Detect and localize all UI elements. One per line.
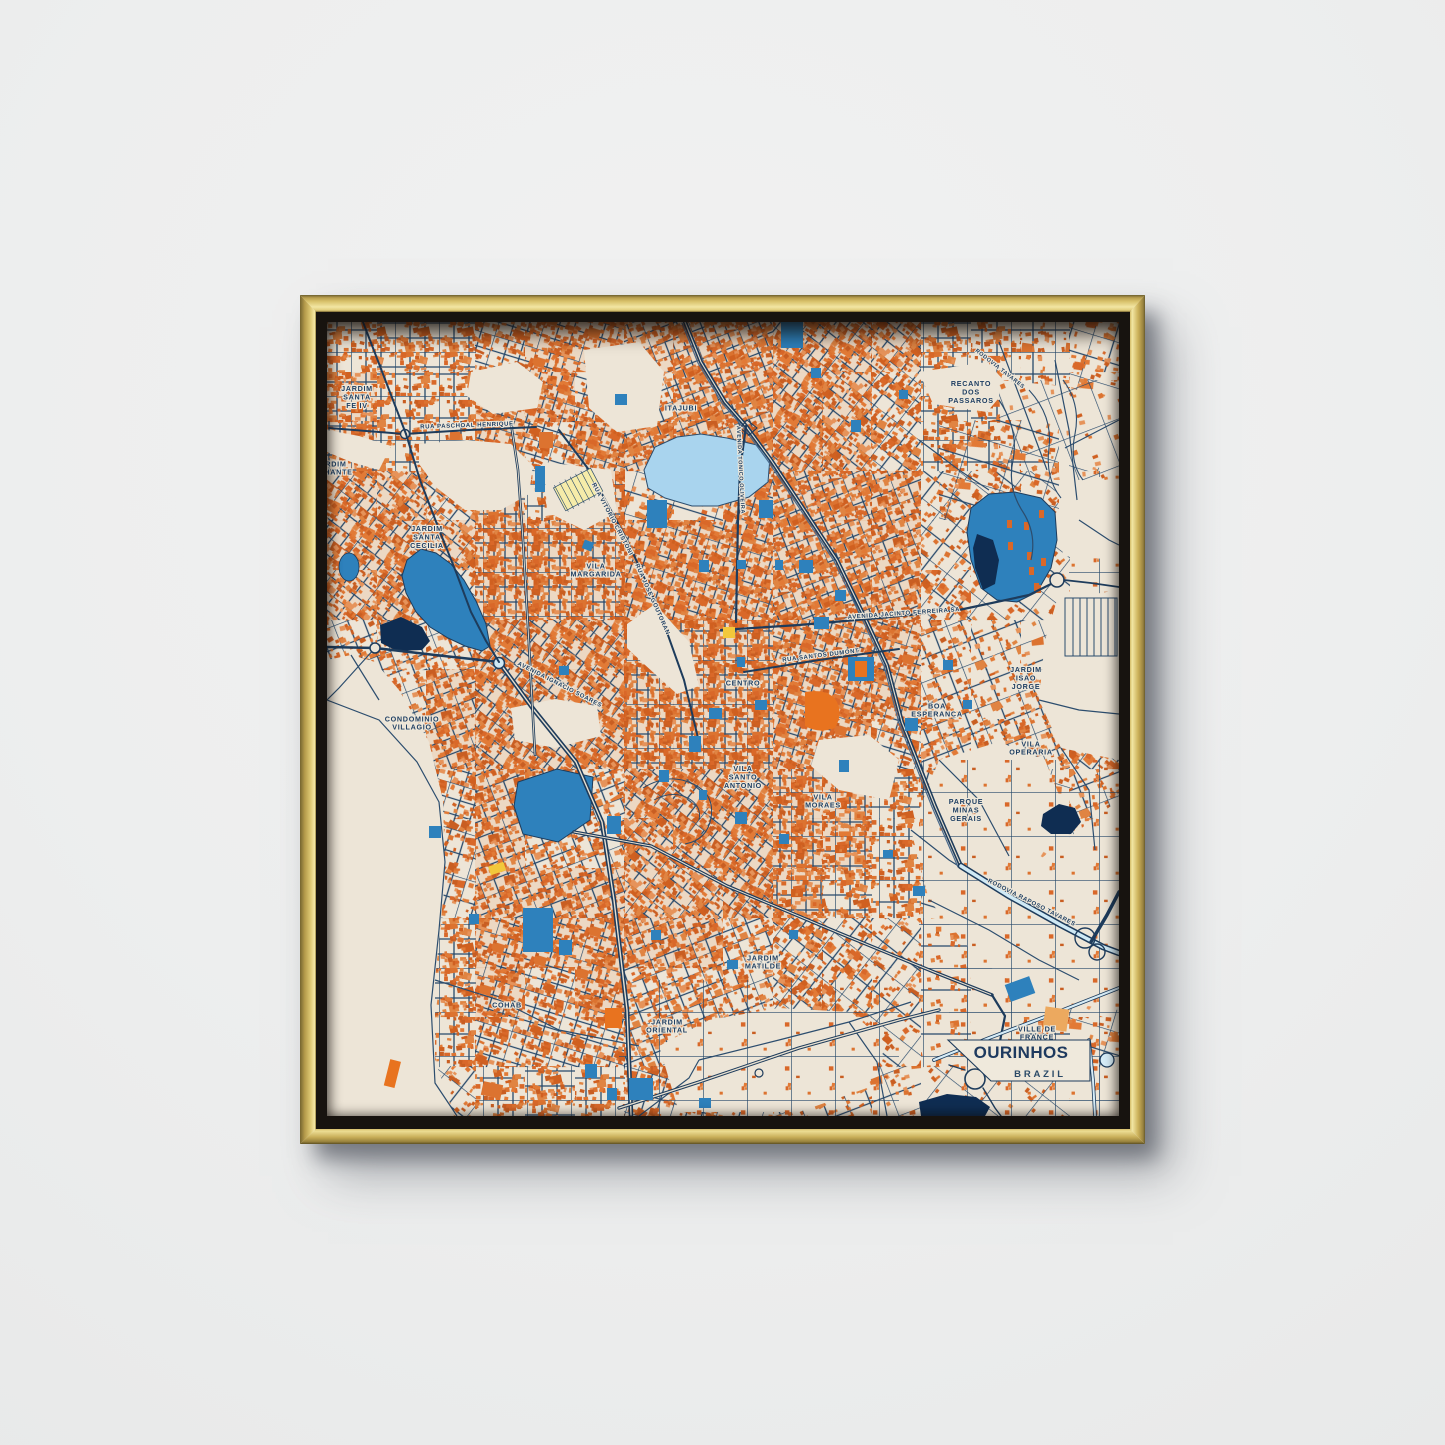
svg-text:BRAZIL: BRAZIL — [1014, 1069, 1066, 1080]
svg-text:ITAJUBI: ITAJUBI — [665, 404, 697, 413]
svg-text:JARDIMSANTACECILIA: JARDIMSANTACECILIA — [410, 524, 444, 550]
svg-text:COHAB: COHAB — [492, 1001, 522, 1010]
svg-text:PARQUEMINASGERAIS: PARQUEMINASGERAIS — [949, 797, 983, 823]
svg-text:OURINHOS: OURINHOS — [974, 1043, 1069, 1062]
svg-text:VILLE DEFRANCE: VILLE DEFRANCE — [1018, 1024, 1056, 1041]
svg-text:CENTRO: CENTRO — [726, 679, 761, 688]
svg-text:CONDOMINIOVILLAGIO: CONDOMINIOVILLAGIO — [385, 714, 440, 731]
svg-text:JARDIMORIENTAL: JARDIMORIENTAL — [646, 1017, 688, 1034]
svg-text:JARDIMMATILDE: JARDIMMATILDE — [745, 953, 781, 970]
